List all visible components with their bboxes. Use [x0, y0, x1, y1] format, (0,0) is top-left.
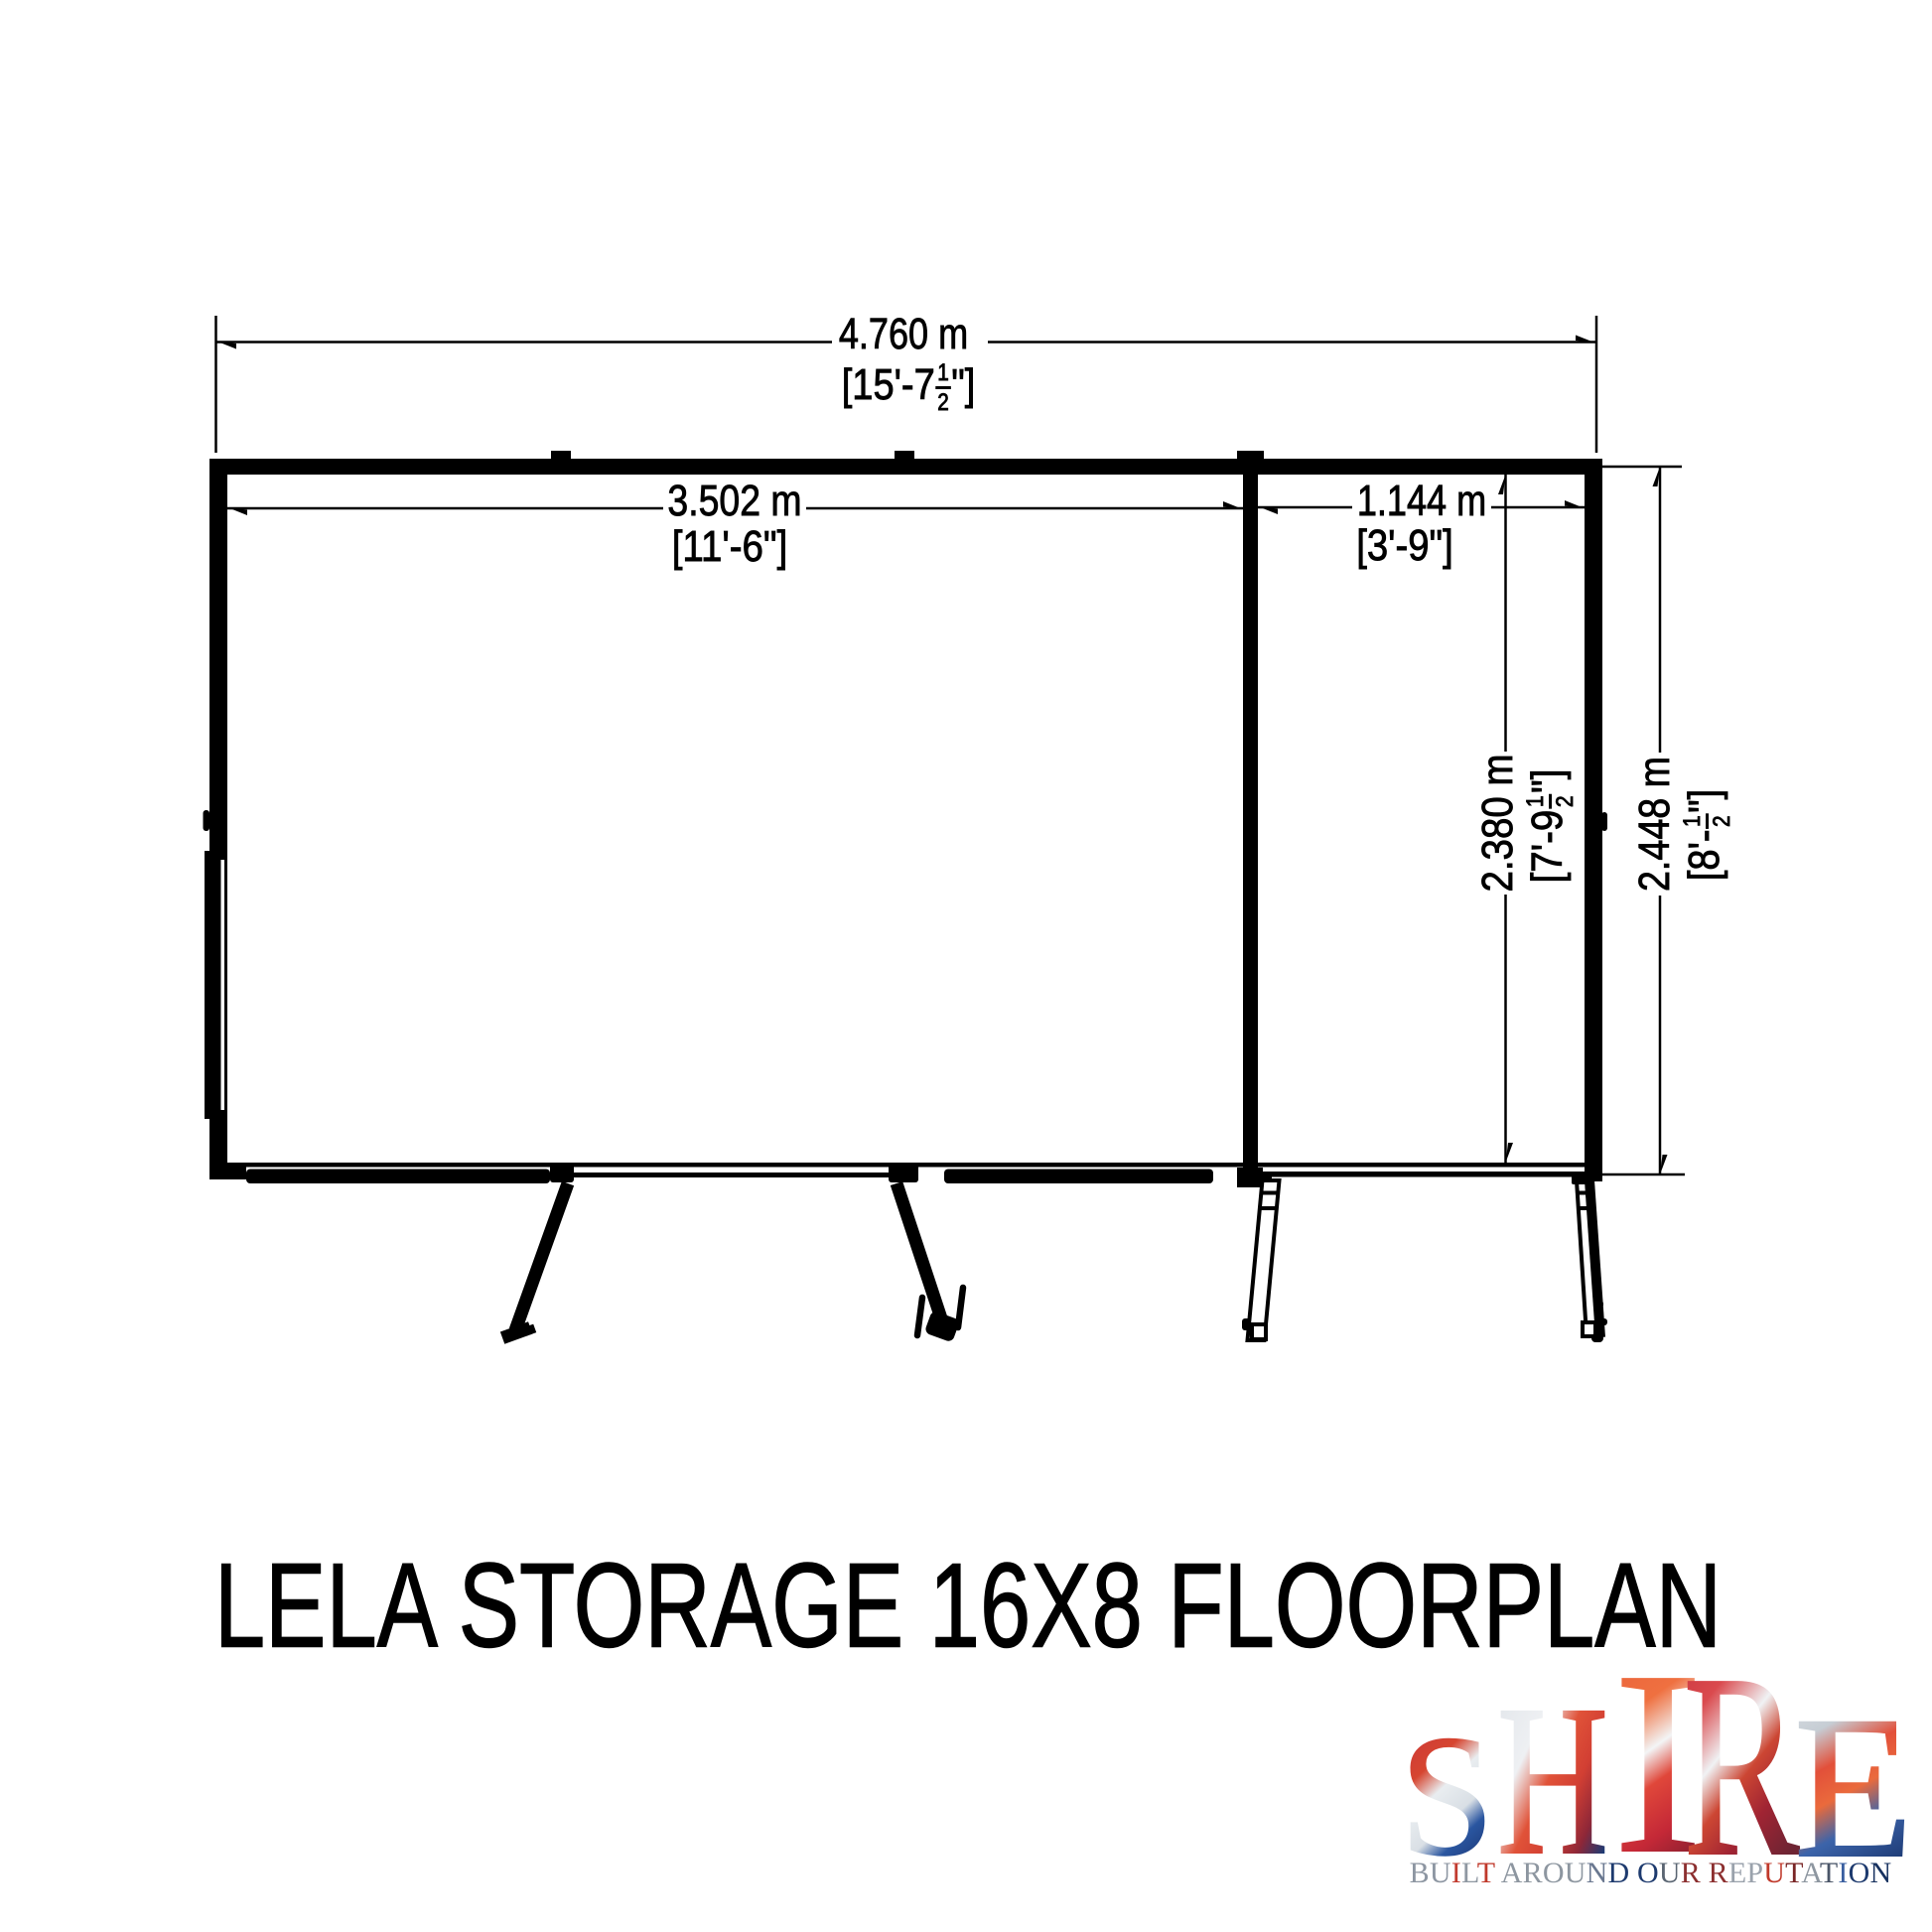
svg-text:BUILT AROUND OUR REPUTATION: BUILT AROUND OUR REPUTATION	[1410, 1857, 1892, 1889]
